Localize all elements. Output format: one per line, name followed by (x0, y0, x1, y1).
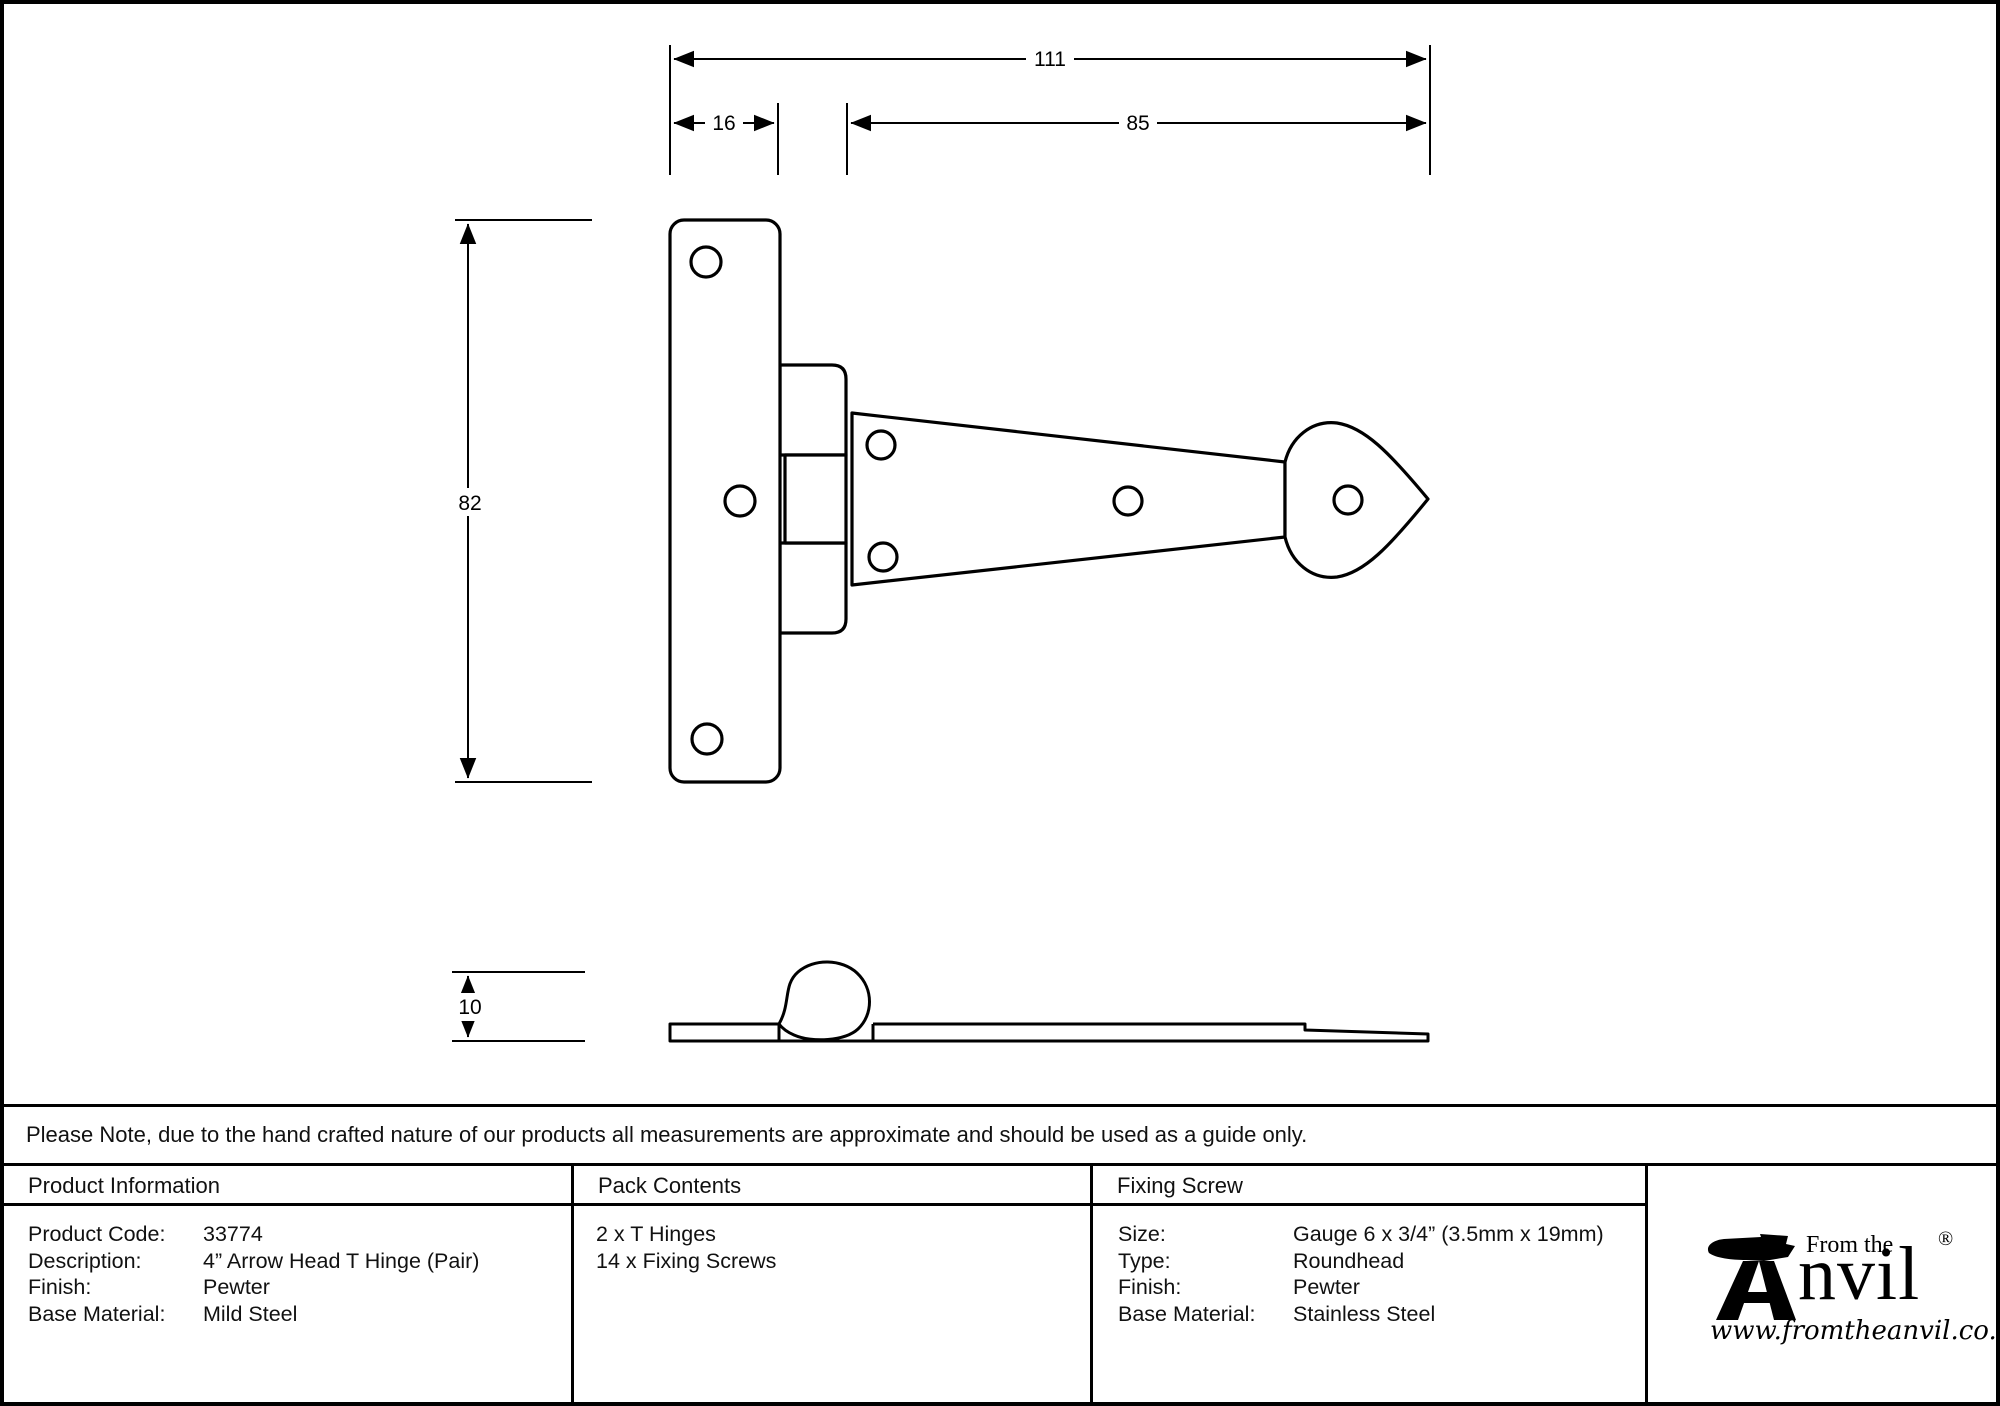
row-label: Description: (28, 1248, 203, 1275)
measurement-note: Please Note, due to the hand crafted nat… (4, 1104, 1996, 1163)
hinge-side-view (670, 962, 1428, 1041)
product-information-header: Product Information (4, 1166, 571, 1206)
pack-item: 14 x Fixing Screws (596, 1248, 1090, 1275)
fixing-screw-header: Fixing Screw (1093, 1166, 1645, 1206)
dim-thickness: 10 (458, 996, 481, 1019)
spec-sheet-page: 111 16 85 82 10 Please Note, due to the … (0, 0, 2000, 1406)
pack-contents-header: Pack Contents (574, 1166, 1090, 1206)
screw-hole (867, 431, 895, 459)
dim-plate-width: 16 (712, 112, 735, 135)
screw-hole (725, 486, 755, 516)
knuckle-top-block (780, 365, 846, 455)
logo-website-url: www.fromtheanvil.co.uk (1710, 1316, 1954, 1346)
anvil-icon (1704, 1234, 1804, 1324)
row-value: 33774 (203, 1222, 263, 1246)
dim-strap-length: 85 (1126, 112, 1149, 135)
knuckle-barrel (785, 455, 846, 543)
table-row: Finish:Pewter (28, 1274, 571, 1301)
screw-hole (1334, 486, 1362, 514)
row-label: Product Code: (28, 1221, 203, 1248)
row-value: 4” Arrow Head T Hinge (Pair) (203, 1249, 479, 1273)
row-value: Pewter (1293, 1275, 1360, 1299)
table-row: Finish:Pewter (1118, 1274, 1645, 1301)
row-value: Gauge 6 x 3/4” (3.5mm x 19mm) (1293, 1222, 1604, 1246)
screw-hole (869, 543, 897, 571)
screw-hole (692, 724, 722, 754)
dim-overall-length: 111 (1034, 48, 1066, 71)
technical-drawing: 111 16 85 82 10 (4, 4, 1996, 1104)
knuckle-bottom-block (780, 543, 846, 633)
table-row: Description:4” Arrow Head T Hinge (Pair) (28, 1248, 571, 1275)
strap-arm (852, 413, 1285, 585)
fixing-screw-column: Fixing Screw Size:Gauge 6 x 3/4” (3.5mm … (1093, 1166, 1648, 1405)
screw-hole (691, 247, 721, 277)
row-value: Pewter (203, 1275, 270, 1299)
product-table: Product Information Product Code:33774 D… (4, 1163, 1996, 1405)
row-value: Roundhead (1293, 1249, 1404, 1273)
table-row: Size:Gauge 6 x 3/4” (3.5mm x 19mm) (1118, 1221, 1645, 1248)
table-row: Type:Roundhead (1118, 1248, 1645, 1275)
logo-brand-text: nvil (1798, 1236, 1920, 1312)
row-value: Mild Steel (203, 1302, 297, 1326)
product-information-column: Product Information Product Code:33774 D… (4, 1166, 574, 1405)
registered-trademark-icon: ® (1938, 1228, 1953, 1251)
row-value: Stainless Steel (1293, 1302, 1435, 1326)
dim-plate-height: 82 (458, 492, 481, 515)
hinge-top-view (670, 220, 1428, 782)
row-label: Finish: (1118, 1274, 1293, 1301)
row-label: Size: (1118, 1221, 1293, 1248)
row-label: Type: (1118, 1248, 1293, 1275)
table-row: Base Material:Mild Steel (28, 1301, 571, 1328)
screw-hole (1114, 487, 1142, 515)
note-text: Please Note, due to the hand crafted nat… (26, 1122, 1307, 1148)
table-row: Base Material:Stainless Steel (1118, 1301, 1645, 1328)
row-label: Base Material: (1118, 1301, 1293, 1328)
pack-item: 2 x T Hinges (596, 1221, 1090, 1248)
pack-contents-column: Pack Contents 2 x T Hinges 14 x Fixing S… (574, 1166, 1093, 1405)
from-the-anvil-logo: From the nvil ® www.fromtheanvil.co.uk (1648, 1228, 1996, 1358)
knuckle-loop (779, 962, 870, 1040)
table-row: Product Code:33774 (28, 1221, 571, 1248)
row-label: Finish: (28, 1274, 203, 1301)
row-label: Base Material: (28, 1301, 203, 1328)
brand-column: From the nvil ® www.fromtheanvil.co.uk (1648, 1166, 1996, 1405)
